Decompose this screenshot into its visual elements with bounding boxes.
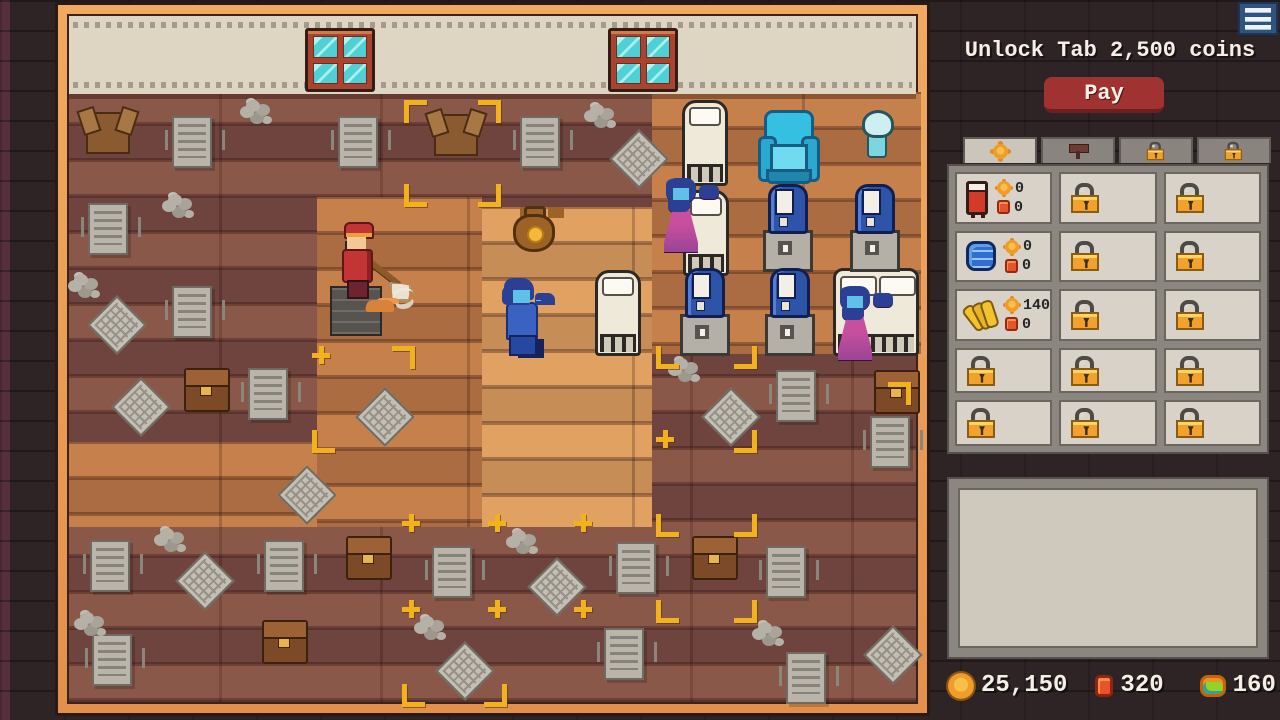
chest-debris[interactable] — [184, 368, 230, 412]
newspaper-debris[interactable] — [355, 387, 414, 446]
red-gem-icon — [1005, 317, 1018, 331]
coin-cost: 0 — [997, 180, 1024, 197]
window-pane — [313, 63, 338, 85]
slot-costs: 0 0 — [1005, 238, 1032, 274]
tile-purchase-marker[interactable] — [656, 430, 674, 448]
lock-icon — [1070, 183, 1102, 213]
tile-purchase-marker[interactable] — [404, 184, 427, 207]
shop-slot-locked[interactable] — [1164, 348, 1261, 394]
detail-panel-content — [958, 488, 1258, 648]
lock-body — [1071, 368, 1099, 386]
red-gem-icon — [997, 200, 1010, 214]
gem-cost: 0 — [1005, 316, 1050, 333]
lock-icon — [1175, 241, 1207, 271]
tile-purchase-marker[interactable] — [574, 600, 592, 618]
lock-body — [967, 420, 995, 438]
lock-icon — [1070, 356, 1102, 386]
newspaper-debris[interactable] — [786, 652, 826, 704]
lock-icon — [1175, 183, 1207, 213]
lock-body — [1071, 312, 1099, 330]
lock-body — [1176, 420, 1204, 438]
crate-debris[interactable] — [434, 114, 478, 156]
detail-panel — [947, 477, 1269, 659]
game-scene — [0, 0, 940, 720]
dust-debris[interactable] — [168, 194, 182, 206]
coin-icon — [1005, 298, 1019, 312]
newspaper-debris[interactable] — [766, 546, 806, 598]
tile-purchase-marker[interactable] — [734, 430, 757, 453]
tab-items[interactable] — [963, 137, 1037, 163]
newspaper-debris[interactable] — [248, 368, 288, 420]
tab-locked-2[interactable] — [1197, 137, 1271, 163]
ghost-guest-female[interactable] — [664, 178, 698, 258]
newspaper-debris[interactable] — [87, 295, 146, 354]
lock-body — [1176, 368, 1204, 386]
tile-purchase-marker[interactable] — [478, 100, 501, 123]
ghost-guest-male[interactable] — [500, 278, 542, 356]
bed-footboard — [600, 334, 636, 352]
dust-debris[interactable] — [74, 274, 88, 286]
slot-costs: 0 0 — [997, 180, 1024, 216]
shop-slot-locked[interactable] — [1164, 231, 1261, 283]
bed-pillow — [689, 107, 721, 126]
machine-screen — [775, 189, 794, 215]
currency-bar: 25,150 320 160 — [948, 672, 1278, 699]
hud-panel: Unlock Tab 2,500 coins Pay 0 0 0 0 140 0 — [940, 0, 1280, 720]
lock-icon — [1070, 408, 1102, 438]
dust-debris[interactable] — [590, 104, 604, 116]
coin-cost-value: 140 — [1023, 297, 1050, 314]
newspaper-debris[interactable] — [92, 634, 132, 686]
tile-purchase-marker[interactable] — [402, 684, 425, 707]
dust-debris[interactable] — [80, 612, 94, 624]
tile-purchase-marker[interactable] — [574, 514, 592, 532]
newspaper-debris[interactable] — [609, 129, 668, 188]
machine-screen — [777, 273, 796, 299]
lock-body — [1176, 195, 1204, 213]
tile-purchase-marker[interactable] — [312, 346, 330, 364]
currency-green-gems: 160 — [1200, 672, 1276, 699]
green-gem-icon — [1200, 675, 1226, 697]
gem-cost-value: 0 — [1022, 257, 1031, 274]
newspaper-debris[interactable] — [175, 551, 234, 610]
gem-cost-value: 0 — [1022, 316, 1031, 333]
pay-button[interactable]: Pay — [1044, 77, 1164, 113]
machine-pedestal — [680, 314, 730, 356]
tile-purchase-marker[interactable] — [734, 600, 757, 623]
window — [608, 28, 678, 92]
menu-bar — [1245, 8, 1271, 12]
coin-icon — [993, 144, 1008, 159]
tile-purchase-marker[interactable] — [888, 382, 911, 405]
window-pane — [343, 36, 368, 58]
gold-coin-icon — [948, 673, 974, 699]
coin-cost: 0 — [1005, 238, 1032, 255]
newspaper-debris[interactable] — [863, 625, 922, 684]
crate-debris[interactable] — [86, 112, 130, 154]
lock-icon — [966, 408, 998, 438]
vending-machine[interactable] — [680, 268, 730, 356]
dust-debris[interactable] — [420, 616, 434, 628]
lock-icon — [1175, 408, 1207, 438]
shop-slot-locked[interactable] — [1059, 231, 1156, 283]
newspaper-debris[interactable] — [616, 542, 656, 594]
dust-debris[interactable] — [758, 622, 772, 634]
coin-cost-value: 0 — [1015, 180, 1024, 197]
currency-red-gems: 320 — [1095, 672, 1163, 699]
machine-pedestal — [765, 314, 815, 356]
shop-slot-locked[interactable] — [1164, 400, 1261, 446]
window-pane — [616, 63, 641, 85]
slot-costs: 140 0 — [1005, 297, 1050, 333]
ghost-guest-female[interactable] — [838, 286, 872, 366]
newspaper-debris[interactable] — [277, 465, 336, 524]
red-gem-icon — [1095, 675, 1113, 697]
ghost-head — [862, 110, 894, 138]
hamburger-menu-icon[interactable] — [1238, 2, 1278, 35]
window-pane — [343, 63, 368, 85]
lock-body — [1225, 149, 1242, 160]
shop-slot-locked[interactable] — [955, 348, 1052, 394]
tile-purchase-marker[interactable] — [488, 600, 506, 618]
chest-debris[interactable] — [262, 620, 308, 664]
lock-icon — [1175, 356, 1207, 386]
tile-purchase-marker[interactable] — [656, 346, 679, 369]
tab-locked-1[interactable] — [1119, 137, 1193, 163]
coin-icon — [527, 226, 544, 243]
shop-slot-locked[interactable] — [1164, 289, 1261, 341]
tile-purchase-marker[interactable] — [478, 184, 501, 207]
chest-debris[interactable] — [346, 536, 392, 580]
vending-machine[interactable] — [763, 184, 813, 272]
coin-icon — [997, 181, 1011, 195]
newspaper-debris[interactable] — [111, 377, 170, 436]
vending-machine[interactable] — [850, 184, 900, 272]
lock-icon — [1070, 300, 1102, 330]
lock-body — [1147, 149, 1164, 160]
currency-value: 320 — [1120, 672, 1163, 699]
machine-screen — [862, 189, 881, 215]
shop-slot-locked[interactable] — [955, 400, 1052, 446]
newspaper-debris[interactable] — [520, 116, 560, 168]
lock-body — [1176, 312, 1204, 330]
newspaper-debris[interactable] — [172, 116, 212, 168]
tile-purchase-marker[interactable] — [656, 514, 679, 537]
bed[interactable] — [682, 100, 728, 186]
coin-icon — [1005, 240, 1019, 254]
newspaper-debris[interactable] — [90, 540, 130, 592]
window-pane — [313, 36, 338, 58]
gem-cost: 0 — [997, 199, 1024, 216]
gem-cost: 0 — [1005, 257, 1032, 274]
tab-tools[interactable] — [1041, 137, 1115, 163]
bellhop-character[interactable] — [330, 222, 414, 334]
tile-purchase-marker[interactable] — [488, 514, 506, 532]
currency-value: 160 — [1233, 672, 1276, 699]
currency-value: 25,150 — [981, 672, 1067, 699]
money-bag[interactable] — [513, 206, 555, 252]
window-pane — [616, 36, 641, 58]
gem-cost-value: 0 — [1014, 199, 1023, 216]
shop-slot-locked[interactable] — [1059, 348, 1156, 394]
coin-cost: 140 — [1005, 297, 1050, 314]
shop-slot-locked[interactable] — [1164, 172, 1261, 224]
lock-body — [1071, 253, 1099, 271]
tile-purchase-marker[interactable] — [402, 600, 420, 618]
shop-item-grid: 0 0 0 0 140 0 — [947, 164, 1269, 454]
machine-screen — [692, 273, 711, 299]
shop-slot-item[interactable]: 0 0 — [955, 231, 1052, 283]
tile-purchase-marker[interactable] — [484, 684, 507, 707]
swept-dust — [366, 300, 394, 312]
newspaper-debris[interactable] — [88, 203, 128, 255]
window-pane — [646, 63, 671, 85]
bed[interactable] — [595, 270, 641, 356]
shop-slot-locked[interactable] — [1059, 289, 1156, 341]
shop-slot-locked[interactable] — [1059, 172, 1156, 224]
lock-icon — [1146, 142, 1166, 161]
menu-bar — [1245, 17, 1271, 21]
lock-body — [967, 368, 995, 386]
tile-purchase-marker[interactable] — [402, 514, 420, 532]
lock-icon — [1175, 300, 1207, 330]
newspaper-debris[interactable] — [432, 546, 472, 598]
lock-icon — [966, 356, 998, 386]
window-pane — [646, 36, 671, 58]
bed-pillow — [879, 276, 916, 296]
shop-slot-locked[interactable] — [1059, 400, 1156, 446]
lock-body — [1071, 420, 1099, 438]
newspaper-debris[interactable] — [604, 628, 644, 680]
hammer-icon — [1069, 143, 1087, 159]
tile-purchase-marker[interactable] — [392, 346, 415, 369]
tile-purchase-marker[interactable] — [734, 346, 757, 369]
blue-towels-icon — [966, 241, 996, 271]
newspaper-debris[interactable] — [264, 540, 304, 592]
vending-machine[interactable] — [765, 268, 815, 356]
machine-pedestal — [850, 230, 900, 272]
red-bed-icon — [966, 181, 988, 215]
red-gem-icon — [1005, 259, 1018, 273]
lock-body — [1071, 195, 1099, 213]
newspaper-debris[interactable] — [338, 116, 378, 168]
chest-debris[interactable] — [692, 536, 738, 580]
machine-pedestal — [763, 230, 813, 272]
lock-body — [1176, 253, 1204, 271]
lock-icon — [1070, 241, 1102, 271]
dust-debris[interactable] — [512, 530, 526, 542]
dust-debris[interactable] — [160, 528, 174, 540]
newspaper-debris[interactable] — [776, 370, 816, 422]
tile-purchase-marker[interactable] — [656, 600, 679, 623]
newspaper-debris[interactable] — [172, 286, 212, 338]
newspaper-debris[interactable] — [870, 416, 910, 468]
dust-debris[interactable] — [246, 100, 260, 112]
shop-slot-item[interactable]: 0 0 — [955, 172, 1052, 224]
shop-tabs — [963, 137, 1271, 163]
tile-purchase-marker[interactable] — [312, 430, 335, 453]
unlock-tab-text: Unlock Tab 2,500 coins — [940, 38, 1280, 63]
lock-icon — [1224, 142, 1244, 161]
menu-bar — [1245, 25, 1271, 29]
window — [305, 28, 375, 92]
currency-coins: 25,150 — [948, 672, 1067, 699]
bed-pillow — [602, 277, 634, 296]
armchair[interactable] — [758, 110, 820, 184]
shop-slot-item[interactable]: 140 0 — [955, 289, 1052, 341]
coin-cost-value: 0 — [1023, 238, 1032, 255]
tile-purchase-marker[interactable] — [734, 514, 757, 537]
bananas-icon — [966, 300, 996, 330]
tile-purchase-marker[interactable] — [404, 100, 427, 123]
